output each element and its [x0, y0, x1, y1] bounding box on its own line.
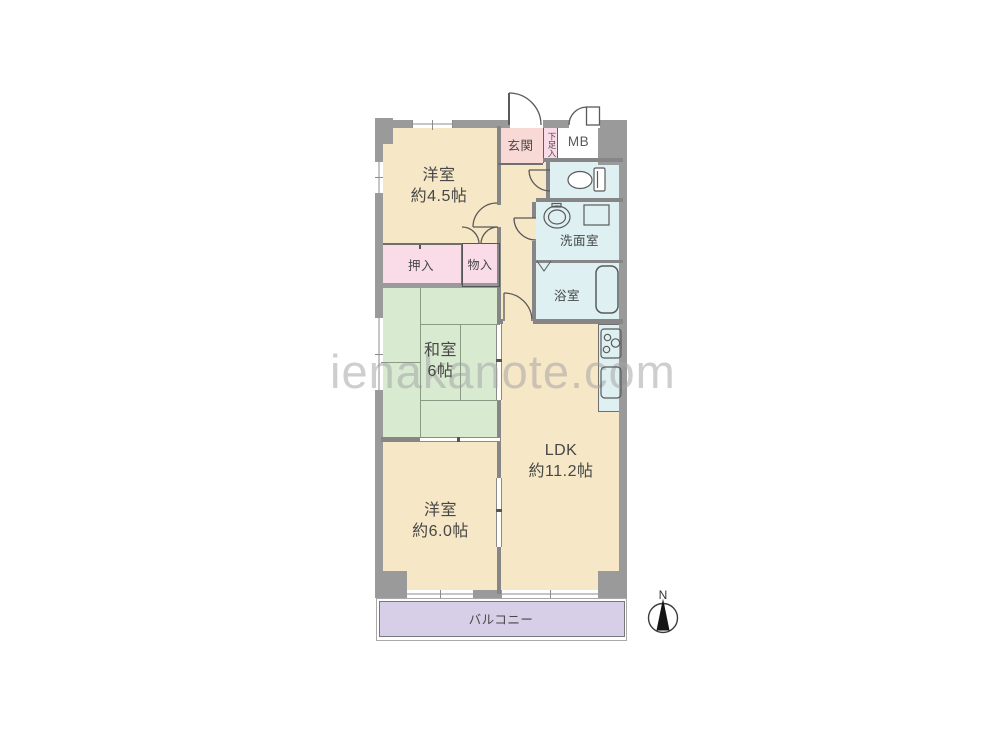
floor-plan-canvas: ienakanote.com: [0, 0, 1000, 750]
sliding-door-handle: [457, 437, 460, 442]
wall-segment: [533, 319, 623, 324]
fusuma-handle: [419, 245, 421, 249]
hallway-lower-area: [500, 203, 536, 322]
door-gap-western45: [497, 205, 501, 227]
wall-segment: [375, 390, 383, 573]
door-gap-ldk: [503, 319, 533, 324]
washroom-area: [536, 200, 623, 262]
label-western-45: 洋室 約4.5帖: [380, 165, 498, 207]
wall-segment: [546, 161, 550, 202]
wall-segment: [375, 193, 383, 318]
wall-segment: [532, 202, 536, 218]
compass-circle: [649, 604, 678, 633]
label-entrance: 玄関: [498, 138, 543, 155]
window-balcony-western60: [407, 590, 473, 598]
toilet-room-area: [550, 161, 623, 201]
label-balcony: バルコニー: [379, 612, 623, 629]
compass-needle: [657, 599, 670, 631]
wall-segment: [453, 120, 510, 128]
label-western-60: 洋室 約6.0帖: [381, 500, 500, 542]
wall-segment: [536, 260, 623, 263]
label-shoe-box: 下足入: [545, 127, 556, 163]
window-top: [412, 120, 453, 128]
wall-corner-bottom-left: [375, 571, 407, 598]
hallway-upper-area: [500, 163, 550, 203]
compass-n-label: N: [659, 588, 668, 602]
label-oshiire: 押入: [381, 258, 461, 275]
label-japanese-room: 和室 6帖: [381, 340, 500, 382]
wall-segment: [381, 437, 420, 442]
window-balcony-ldk: [502, 590, 598, 598]
wall-segment: [532, 241, 536, 320]
oshiire-fusuma-line: [383, 243, 461, 245]
wall-segment: [536, 198, 623, 202]
label-ldk: LDK 約11.2帖: [500, 440, 622, 482]
wall-segment: [375, 120, 383, 162]
entrance-door-gap: [510, 120, 543, 128]
wall-segment: [497, 547, 501, 594]
compass: N: [649, 588, 678, 633]
entrance-step-line: [498, 163, 543, 165]
label-bathroom: 浴室: [536, 288, 598, 305]
label-monoire: 物入: [462, 258, 498, 274]
label-meter-box: MB: [557, 133, 600, 151]
label-washroom: 洗面室: [536, 233, 623, 250]
meter-box-door-gap: [569, 120, 600, 128]
sliding-door-washitsu-western60: [420, 437, 500, 442]
